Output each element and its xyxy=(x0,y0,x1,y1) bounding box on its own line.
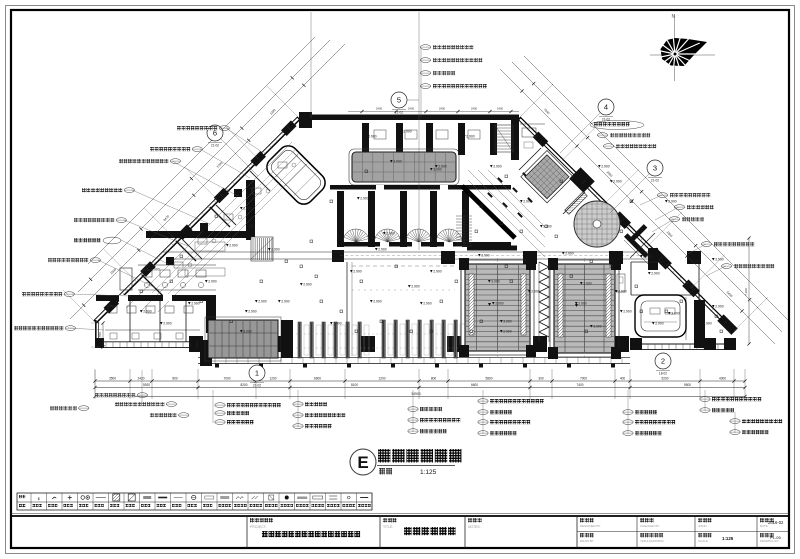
svg-text:5920: 5920 xyxy=(143,383,150,387)
svg-text:8470: 8470 xyxy=(163,214,171,222)
svg-text:JIANLI: JIANLI xyxy=(698,524,707,528)
svg-text:300: 300 xyxy=(538,377,544,381)
svg-text:2,700: 2,700 xyxy=(98,332,102,340)
svg-text:2: 2 xyxy=(661,357,665,366)
svg-text:2.900: 2.900 xyxy=(163,322,172,326)
svg-text:2.900: 2.900 xyxy=(601,165,610,169)
svg-text:2400: 2400 xyxy=(471,107,478,111)
svg-text:2400: 2400 xyxy=(408,107,415,111)
svg-text:2.900: 2.900 xyxy=(643,255,652,259)
svg-text:400: 400 xyxy=(620,377,626,381)
svg-text:1:125: 1:125 xyxy=(722,536,734,541)
svg-text:2.900: 2.900 xyxy=(523,200,532,204)
svg-text:2.900: 2.900 xyxy=(715,258,724,262)
svg-text:2400: 2400 xyxy=(439,107,446,111)
svg-text:1190: 1190 xyxy=(269,108,277,116)
svg-text:7000: 7000 xyxy=(223,377,230,381)
svg-text:4: 4 xyxy=(604,103,608,112)
svg-text:2.900: 2.900 xyxy=(715,305,724,309)
svg-text:2.900: 2.900 xyxy=(618,290,627,294)
svg-text:2400: 2400 xyxy=(497,107,504,111)
svg-text:2.900: 2.900 xyxy=(368,135,377,139)
svg-text:6600: 6600 xyxy=(471,383,478,387)
svg-text:2.900: 2.900 xyxy=(531,290,540,294)
svg-text:2.900: 2.900 xyxy=(191,302,200,306)
svg-text:2.900: 2.900 xyxy=(623,310,632,314)
svg-text:3500: 3500 xyxy=(109,377,116,381)
svg-text:1200: 1200 xyxy=(378,377,385,381)
svg-text:N: N xyxy=(672,14,676,20)
svg-text:18-02: 18-02 xyxy=(659,372,667,376)
svg-text:2.900: 2.900 xyxy=(248,310,257,314)
svg-text:1600: 1600 xyxy=(666,230,674,238)
svg-text:2.900: 2.900 xyxy=(655,322,664,326)
svg-text:1500: 1500 xyxy=(109,267,117,275)
svg-text:2.900: 2.900 xyxy=(481,254,490,258)
svg-text:3: 3 xyxy=(653,164,657,173)
svg-text:5200: 5200 xyxy=(661,377,668,381)
svg-text:DRAW BY: DRAW BY xyxy=(580,539,594,543)
svg-text:PL-05: PL-05 xyxy=(770,535,781,540)
svg-text:2.900: 2.900 xyxy=(243,207,252,211)
svg-text:2.900: 2.900 xyxy=(433,270,442,274)
svg-text:6900: 6900 xyxy=(314,377,321,381)
svg-text:NOTES:: NOTES: xyxy=(468,525,481,529)
svg-text:3.000: 3.000 xyxy=(433,168,442,172)
svg-text:7240: 7240 xyxy=(543,107,551,115)
svg-text:TITLE:: TITLE: xyxy=(383,525,393,529)
svg-text:2.900: 2.900 xyxy=(271,248,280,252)
svg-text:2.900: 2.900 xyxy=(565,252,574,256)
svg-text:3.000: 3.000 xyxy=(243,330,252,334)
svg-text:21-02: 21-02 xyxy=(651,179,659,183)
svg-text:2.900: 2.900 xyxy=(303,283,312,287)
svg-text:DATE: DATE xyxy=(760,524,768,528)
svg-text:1: 1 xyxy=(255,369,259,378)
svg-text:2.900: 2.900 xyxy=(403,130,412,134)
svg-text:4300: 4300 xyxy=(719,377,726,381)
svg-text:2.900: 2.900 xyxy=(143,310,152,314)
svg-text:8200: 8200 xyxy=(240,383,247,387)
svg-text:2.900: 2.900 xyxy=(360,197,369,201)
svg-text:3.000: 3.000 xyxy=(393,160,402,164)
svg-text:7400: 7400 xyxy=(576,383,583,387)
svg-text:2.900: 2.900 xyxy=(281,300,290,304)
svg-text:2.900: 2.900 xyxy=(353,270,362,274)
svg-text:$: $ xyxy=(38,497,40,501)
svg-text:1200: 1200 xyxy=(269,377,276,381)
svg-text:9500: 9500 xyxy=(684,383,691,387)
svg-text:5430: 5430 xyxy=(726,290,734,298)
svg-text:3.000: 3.000 xyxy=(593,325,602,329)
svg-text:21-02: 21-02 xyxy=(253,384,261,388)
svg-text:SCALE: SCALE xyxy=(698,539,708,543)
svg-text:34900: 34900 xyxy=(411,392,421,396)
svg-text:2.900: 2.900 xyxy=(378,248,387,252)
svg-text:2.900: 2.900 xyxy=(373,300,382,304)
svg-text:2.900: 2.900 xyxy=(578,302,587,306)
svg-text:E: E xyxy=(357,453,368,472)
svg-text:2.900: 2.900 xyxy=(208,280,217,284)
svg-text:2.900: 2.900 xyxy=(703,322,712,326)
svg-text:800: 800 xyxy=(172,377,178,381)
svg-text:21-02: 21-02 xyxy=(395,111,403,115)
svg-text:2.900: 2.900 xyxy=(258,300,267,304)
svg-text:PROJECT:: PROJECT: xyxy=(250,525,266,529)
svg-text:2.900: 2.900 xyxy=(495,302,504,306)
svg-text:3.000: 3.000 xyxy=(491,280,500,284)
svg-text:7000: 7000 xyxy=(580,377,587,381)
svg-text:2.900: 2.900 xyxy=(503,330,512,334)
svg-text:DESIGNED BY: DESIGNED BY xyxy=(580,524,601,528)
svg-text:3.000: 3.000 xyxy=(503,320,512,324)
svg-text:2420: 2420 xyxy=(137,377,144,381)
svg-text:5800: 5800 xyxy=(485,377,492,381)
svg-text:2016-02: 2016-02 xyxy=(768,520,784,525)
svg-text:2.900: 2.900 xyxy=(613,180,622,184)
svg-text:2.900: 2.900 xyxy=(466,135,475,139)
svg-text:CHECKED BY: CHECKED BY xyxy=(640,524,660,528)
svg-text:800: 800 xyxy=(431,377,437,381)
svg-text:3090: 3090 xyxy=(606,170,614,178)
svg-text:2.900: 2.900 xyxy=(651,272,660,276)
svg-text:2.900: 2.900 xyxy=(333,322,342,326)
svg-text:2.900: 2.900 xyxy=(229,244,238,248)
svg-text:7,100: 7,100 xyxy=(744,288,748,296)
svg-text:YEZHUQIANMING: YEZHUQIANMING xyxy=(640,539,664,543)
svg-text:2400: 2400 xyxy=(376,107,383,111)
svg-text:21-02: 21-02 xyxy=(211,144,219,148)
svg-text:2.900: 2.900 xyxy=(411,285,420,289)
svg-text:2.900: 2.900 xyxy=(423,302,432,306)
svg-text:2.900: 2.900 xyxy=(493,165,502,169)
svg-text:3.000: 3.000 xyxy=(583,282,592,286)
svg-text:8100: 8100 xyxy=(351,383,358,387)
svg-text:5: 5 xyxy=(397,96,401,105)
svg-text:3.000: 3.000 xyxy=(671,312,680,316)
svg-text:2.900: 2.900 xyxy=(151,268,160,272)
svg-text:1:125: 1:125 xyxy=(420,469,437,476)
svg-text:2.900: 2.900 xyxy=(386,232,395,236)
